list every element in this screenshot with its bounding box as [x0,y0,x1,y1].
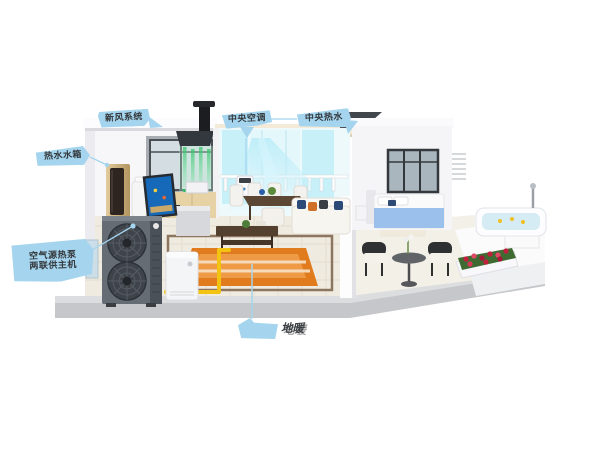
ceiling-ventilator [176,131,214,146]
callout-fresh-air-label: 新风系统 [105,112,144,124]
callout-floor-heating-label: 地暖 [281,320,304,336]
microwave [186,182,208,193]
fan-bottom [108,262,146,300]
centerpiece-plant [268,187,276,195]
water-tank-dot-icon [105,163,109,167]
bedroom [352,126,466,237]
bed-bench [380,230,426,237]
blue-duvet [374,208,444,228]
duct-cap [193,101,215,107]
callout-water-tank-label: 热水水箱 [44,150,83,162]
callout-central-hot-water-label: 中央热水 [305,113,343,125]
callout-fresh-air: 新风系统 [98,109,151,129]
aquarium [144,175,176,218]
callout-central-ac-label: 中央空调 [228,114,266,126]
sofa [292,206,350,234]
heat-pump-outdoor-unit [102,216,162,307]
heat-pump-home-diagram: 新风系统 中央空调 中央热水 热水水箱 空气源热泵 两联供主机 地暖 [0,0,600,450]
buffer-tank [166,252,198,300]
heat-pump-dot-icon [130,223,135,228]
blue-ornament [259,189,265,195]
roof-duct [199,104,210,134]
table-plant [242,220,250,228]
house-cutaway-illustration [0,0,600,450]
nightstand [356,206,367,220]
callout-heat-pump-line2: 两联供主机 [29,260,77,272]
bedroom-window [388,150,438,192]
blinds-strip [452,154,466,179]
